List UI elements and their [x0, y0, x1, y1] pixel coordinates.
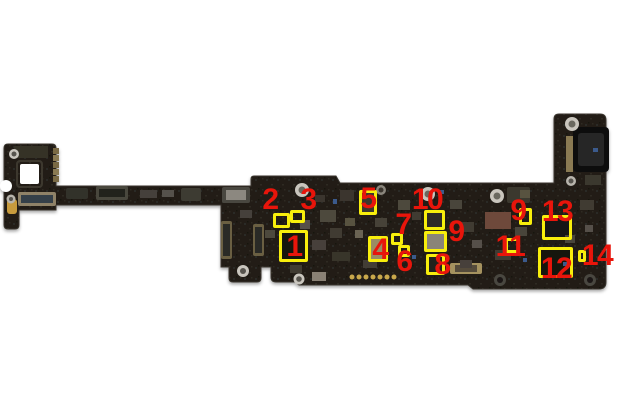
callout-layer: 12345678910911121314 [0, 0, 617, 411]
pcb-teardown-photo: 12345678910911121314 [0, 0, 617, 411]
callout-number-10: 10 [412, 185, 442, 215]
callout-number-13: 13 [542, 197, 572, 227]
callout-number-2: 2 [262, 185, 277, 215]
callout-number-8: 8 [434, 250, 449, 280]
callout-number-4: 4 [372, 235, 387, 265]
callout-number-9: 9 [448, 217, 463, 247]
callout-number-7: 7 [395, 210, 410, 240]
callout-number-9: 9 [510, 196, 525, 226]
callout-number-12: 12 [541, 254, 571, 284]
callout-number-11: 11 [496, 232, 525, 262]
callout-number-3: 3 [300, 185, 315, 215]
callout-number-5: 5 [360, 184, 375, 214]
callout-number-1: 1 [286, 232, 301, 262]
callout-number-14: 14 [582, 241, 612, 271]
callout-number-6: 6 [396, 247, 411, 277]
